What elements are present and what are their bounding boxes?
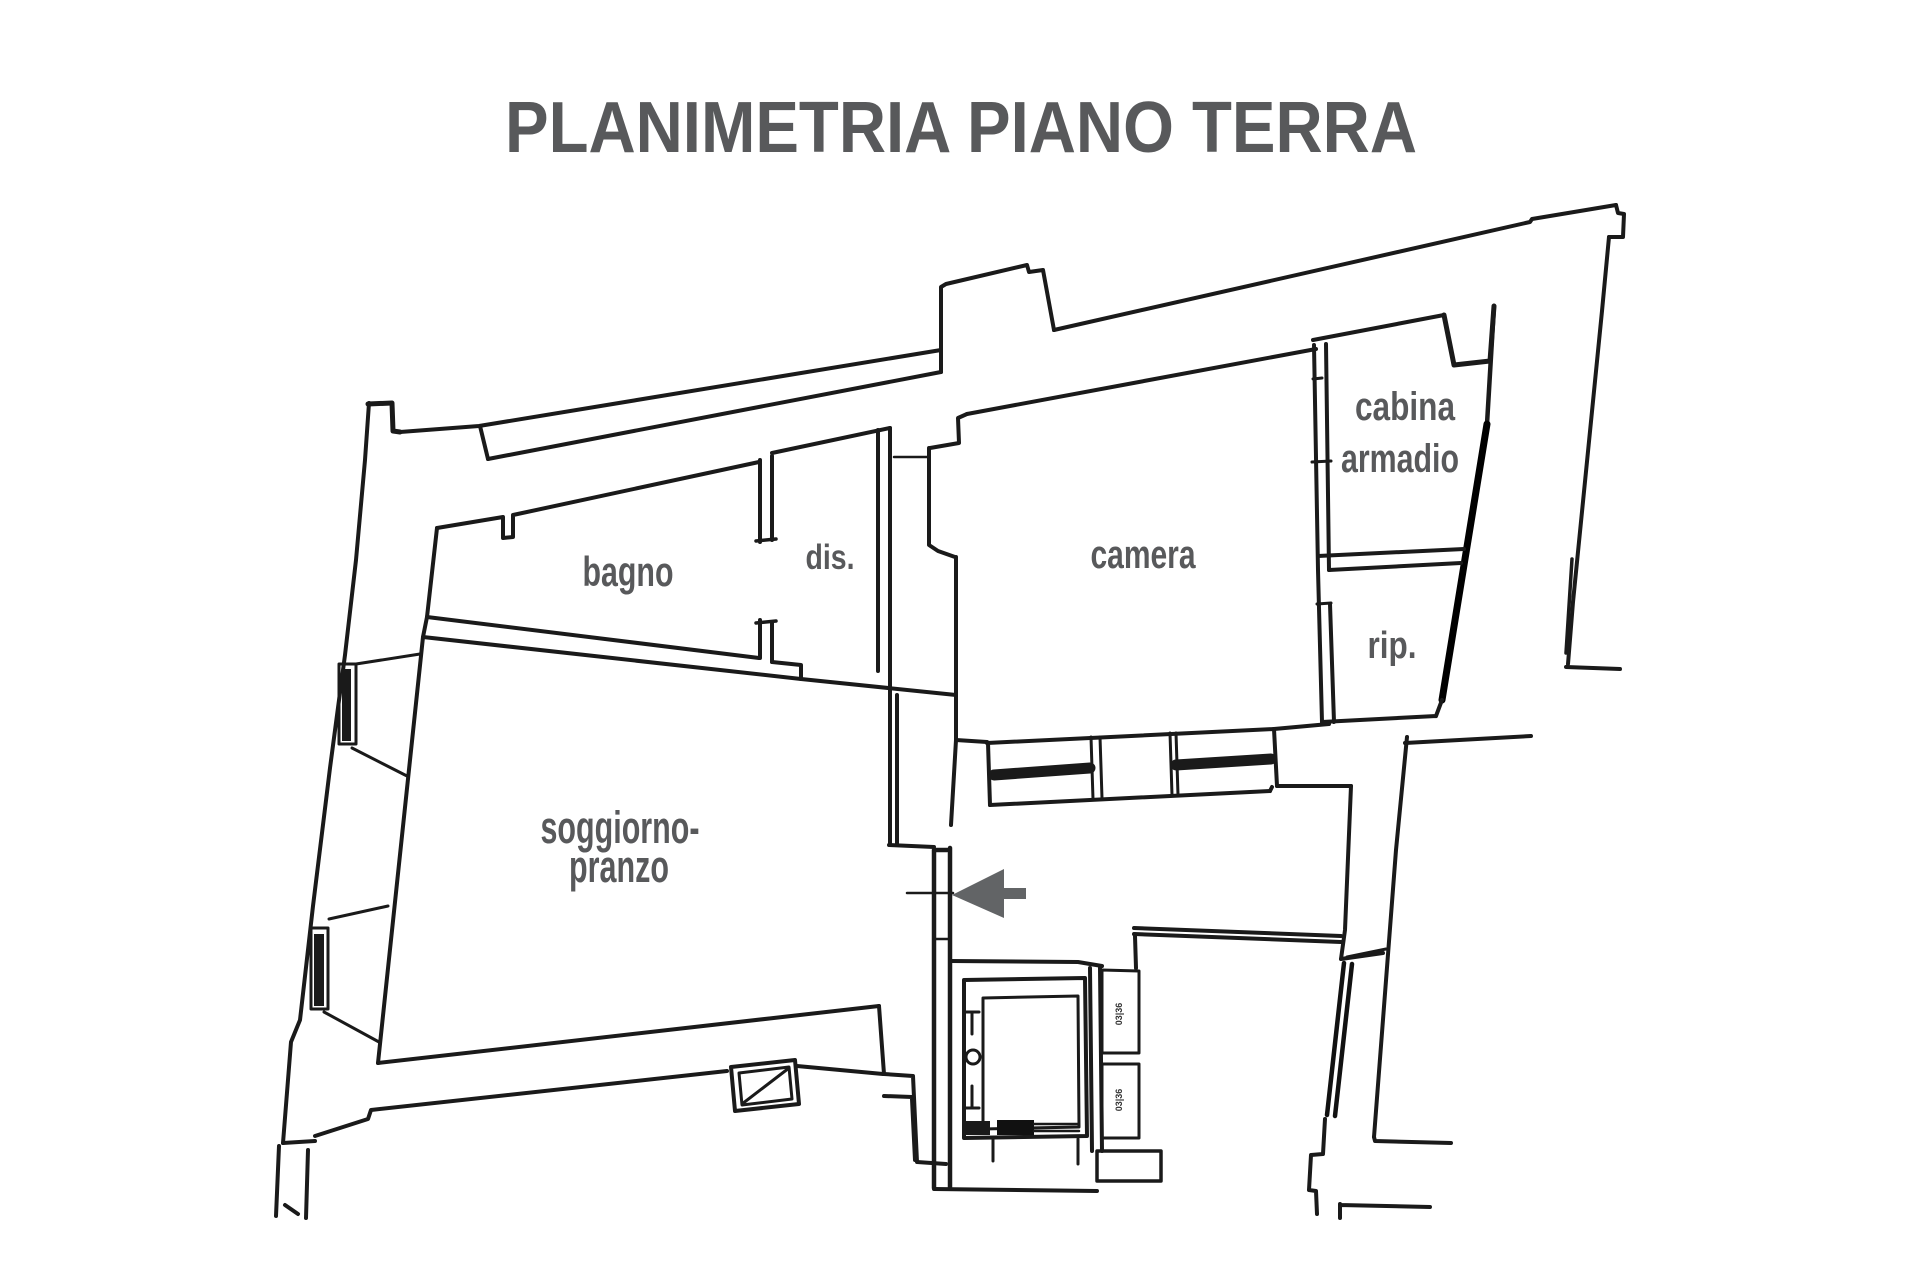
svg-text:bagno: bagno [583,548,674,595]
svg-text:cabina: cabina [1355,385,1456,429]
svg-text:PLANIMETRIA PIANO TERRA: PLANIMETRIA PIANO TERRA [505,88,1417,168]
svg-text:camera: camera [1091,533,1197,577]
svg-text:dis.: dis. [806,538,855,577]
svg-text:pranzo: pranzo [569,841,669,892]
svg-text:rip.: rip. [1368,625,1417,667]
svg-text:03|36: 03|36 [1114,1089,1124,1112]
svg-text:armadio: armadio [1341,437,1459,481]
svg-text:03|36: 03|36 [1114,1003,1124,1026]
